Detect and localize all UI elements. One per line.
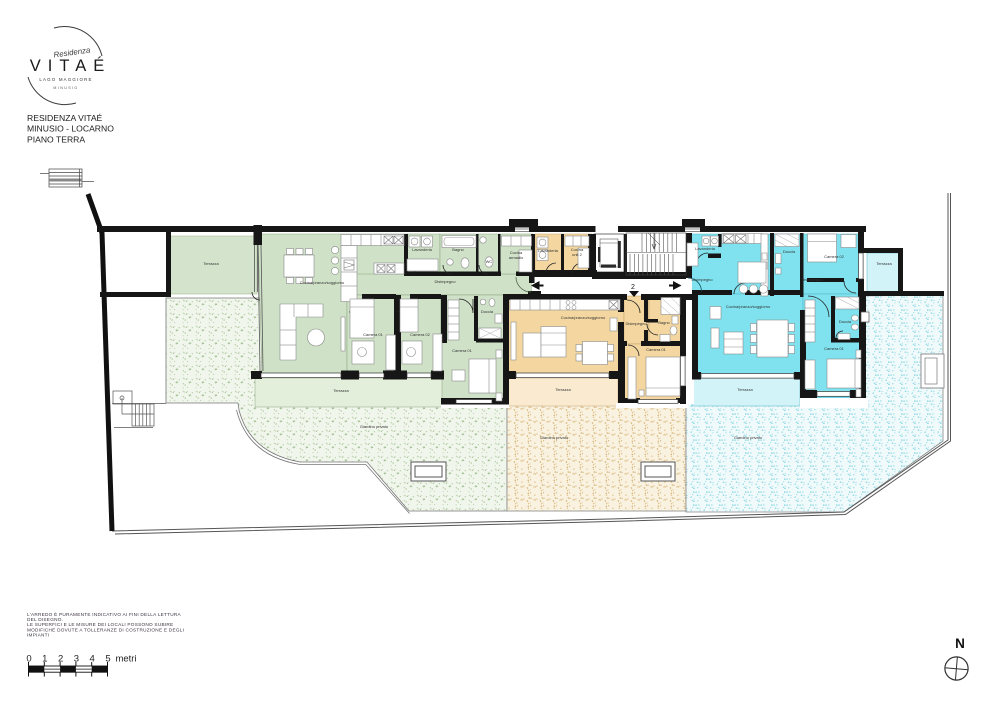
svg-text:Terrazza: Terrazza <box>203 261 219 266</box>
svg-text:Terrazza: Terrazza <box>737 387 753 392</box>
svg-text:Camera 01: Camera 01 <box>824 346 845 351</box>
svg-text:Disimpegno: Disimpegno <box>434 279 456 284</box>
svg-text:Disimpegno: Disimpegno <box>691 277 713 282</box>
svg-text:Camera 01: Camera 01 <box>646 347 667 352</box>
svg-text:Giardino privato: Giardino privato <box>734 435 763 440</box>
svg-text:Lavanderia: Lavanderia <box>695 246 716 251</box>
svg-text:Terrazza: Terrazza <box>333 388 349 393</box>
svg-text:Cucina/pranzo/soggiorno: Cucina/pranzo/soggiorno <box>300 280 345 285</box>
svg-text:metri: metri <box>115 654 136 665</box>
svg-text:Camera 01: Camera 01 <box>363 332 384 337</box>
svg-text:Camera 02: Camera 02 <box>824 254 845 259</box>
svg-text:Bagno: Bagno <box>658 320 670 325</box>
svg-text:RESIDENZA VITAÉ: RESIDENZA VITAÉ <box>27 113 103 123</box>
svg-text:IMPIANTI: IMPIANTI <box>27 632 49 637</box>
svg-text:Doccia: Doccia <box>783 249 796 254</box>
svg-text:MODIFICHE DOVUTE A TOLLERANZE: MODIFICHE DOVUTE A TOLLERANZE DI COSTRUZ… <box>27 627 184 632</box>
svg-text:Doccia: Doccia <box>839 319 852 324</box>
svg-text:Giardino privato: Giardino privato <box>360 424 389 429</box>
svg-text:armadio: armadio <box>509 255 524 260</box>
svg-text:Lavanderia: Lavanderia <box>412 247 433 252</box>
svg-text:LAGO MAGGIORE: LAGO MAGGIORE <box>39 77 92 82</box>
svg-text:Giardino privato: Giardino privato <box>540 435 569 440</box>
svg-text:WC: WC <box>486 259 493 264</box>
svg-text:Disimpegno: Disimpegno <box>625 321 647 326</box>
svg-text:Bagno: Bagno <box>452 247 464 252</box>
svg-text:Camera 02: Camera 02 <box>410 332 431 337</box>
svg-text:VITAÉ: VITAÉ <box>30 56 111 75</box>
svg-text:N: N <box>955 636 965 651</box>
svg-text:Disimpegno: Disimpegno <box>801 277 823 282</box>
svg-text:L'ARREDO È PURAMENTE INDICATIV: L'ARREDO È PURAMENTE INDICATIVO AI FINI … <box>27 611 182 617</box>
svg-text:MINUSIO: MINUSIO <box>53 86 78 90</box>
svg-text:Cucina/pranzo/soggiorno: Cucina/pranzo/soggiorno <box>561 315 606 320</box>
svg-text:PIANO TERRA: PIANO TERRA <box>27 134 85 144</box>
svg-text:Lavanderia: Lavanderia <box>538 248 559 253</box>
svg-text:Terrazza: Terrazza <box>555 387 571 392</box>
svg-text:MINUSIO - LOCARNO: MINUSIO - LOCARNO <box>27 124 114 134</box>
svg-text:Cucina/pranzo/soggiorno: Cucina/pranzo/soggiorno <box>726 304 771 309</box>
svg-text:Terrazza: Terrazza <box>876 261 892 266</box>
svg-text:2: 2 <box>631 284 635 291</box>
svg-text:unit 2: unit 2 <box>572 252 583 257</box>
svg-text:Camera 01: Camera 01 <box>452 348 473 353</box>
svg-text:Doccia: Doccia <box>481 309 494 314</box>
